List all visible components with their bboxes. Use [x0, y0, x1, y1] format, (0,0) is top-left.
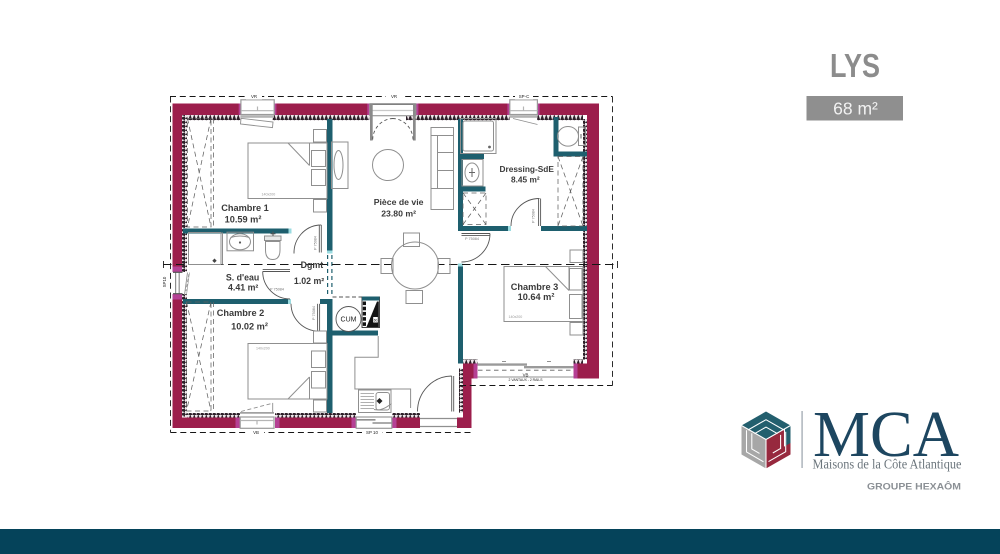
svg-text:10.02 m²: 10.02 m²: [231, 321, 268, 331]
svg-text:SP 10: SP 10: [366, 430, 378, 435]
svg-text:SP-C: SP-C: [519, 94, 530, 99]
svg-text:23.80 m²: 23.80 m²: [381, 208, 416, 218]
svg-text:Chambre 1: Chambre 1: [221, 203, 269, 213]
svg-text:P 75084: P 75084: [314, 236, 318, 250]
svg-text:SP10: SP10: [162, 276, 167, 287]
svg-text:Pièce de vie: Pièce de vie: [374, 197, 424, 207]
svg-text:P 75084: P 75084: [270, 288, 284, 292]
svg-text:2 VANTAUX - 2 RAILS: 2 VANTAUX - 2 RAILS: [509, 378, 544, 382]
svg-text:10.64 m²: 10.64 m²: [518, 292, 555, 302]
svg-text:VB: VB: [523, 373, 529, 378]
svg-text:CUM: CUM: [341, 317, 357, 324]
svg-text:VR: VR: [251, 94, 257, 99]
svg-text:P 75084: P 75084: [465, 237, 479, 241]
svg-text:S. d'eau: S. d'eau: [226, 272, 259, 282]
svg-text:P 75084: P 75084: [532, 209, 536, 223]
svg-text:VR: VR: [391, 94, 397, 99]
svg-text:4.41 m²: 4.41 m²: [228, 283, 258, 293]
svg-text:VB: VB: [253, 430, 259, 435]
svg-text:60: 60: [374, 319, 378, 323]
svg-text:140x200: 140x200: [509, 315, 523, 319]
svg-text:Dressing-SdE: Dressing-SdE: [499, 164, 554, 174]
svg-text:140x200: 140x200: [256, 347, 270, 351]
svg-text:Chambre 2: Chambre 2: [217, 308, 265, 318]
svg-text:GROUPE HEXAÔM: GROUPE HEXAÔM: [867, 481, 961, 493]
svg-text:8.45 m²: 8.45 m²: [511, 174, 540, 184]
svg-text:Chambre 3: Chambre 3: [511, 282, 559, 292]
svg-text:1.02 m²: 1.02 m²: [294, 276, 324, 286]
svg-text:10.59 m²: 10.59 m²: [225, 214, 262, 224]
svg-text:68 m²: 68 m²: [833, 99, 878, 119]
svg-text:140x200: 140x200: [262, 193, 276, 197]
svg-text:Dgmt: Dgmt: [301, 260, 324, 270]
svg-text:Maisons de la Côte Atlantique: Maisons de la Côte Atlantique: [813, 457, 962, 472]
svg-text:LYS: LYS: [830, 48, 880, 85]
svg-text:P 75084: P 75084: [312, 306, 316, 320]
